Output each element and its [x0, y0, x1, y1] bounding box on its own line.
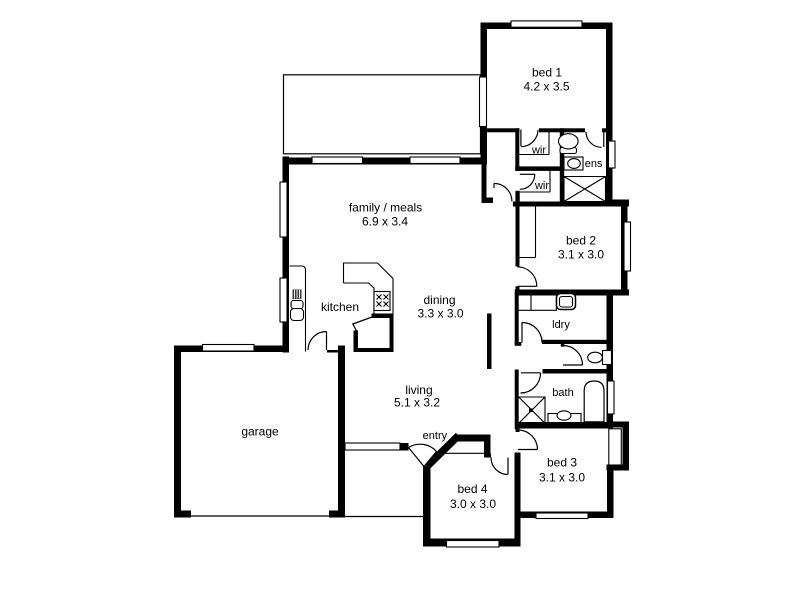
svg-text:ldry: ldry	[552, 319, 570, 331]
svg-text:bed 2: bed 2	[566, 234, 596, 248]
svg-text:garage: garage	[241, 425, 279, 439]
svg-text:3.3 x 3.0: 3.3 x 3.0	[417, 307, 463, 321]
svg-text:bed 1: bed 1	[532, 66, 562, 80]
svg-text:bath: bath	[552, 387, 573, 399]
svg-text:ens: ens	[585, 158, 603, 170]
svg-text:wir: wir	[534, 180, 549, 192]
svg-text:4.2 x 3.5: 4.2 x 3.5	[523, 80, 569, 94]
svg-text:3.1 x 3.0: 3.1 x 3.0	[558, 248, 604, 262]
svg-text:dining: dining	[423, 293, 455, 307]
svg-text:kitchen: kitchen	[321, 300, 359, 314]
svg-text:entry: entry	[423, 430, 448, 442]
svg-text:5.1 x 3.2: 5.1 x 3.2	[394, 396, 440, 410]
svg-text:bed 4: bed 4	[457, 482, 487, 496]
svg-text:bed 3: bed 3	[547, 456, 577, 470]
svg-text:wir: wir	[531, 145, 546, 157]
svg-text:3.1 x 3.0: 3.1 x 3.0	[539, 471, 585, 485]
svg-text:3.0 x 3.0: 3.0 x 3.0	[450, 497, 496, 511]
svg-text:6.9 x 3.4: 6.9 x 3.4	[362, 215, 408, 229]
svg-text:family / meals: family / meals	[349, 201, 422, 215]
